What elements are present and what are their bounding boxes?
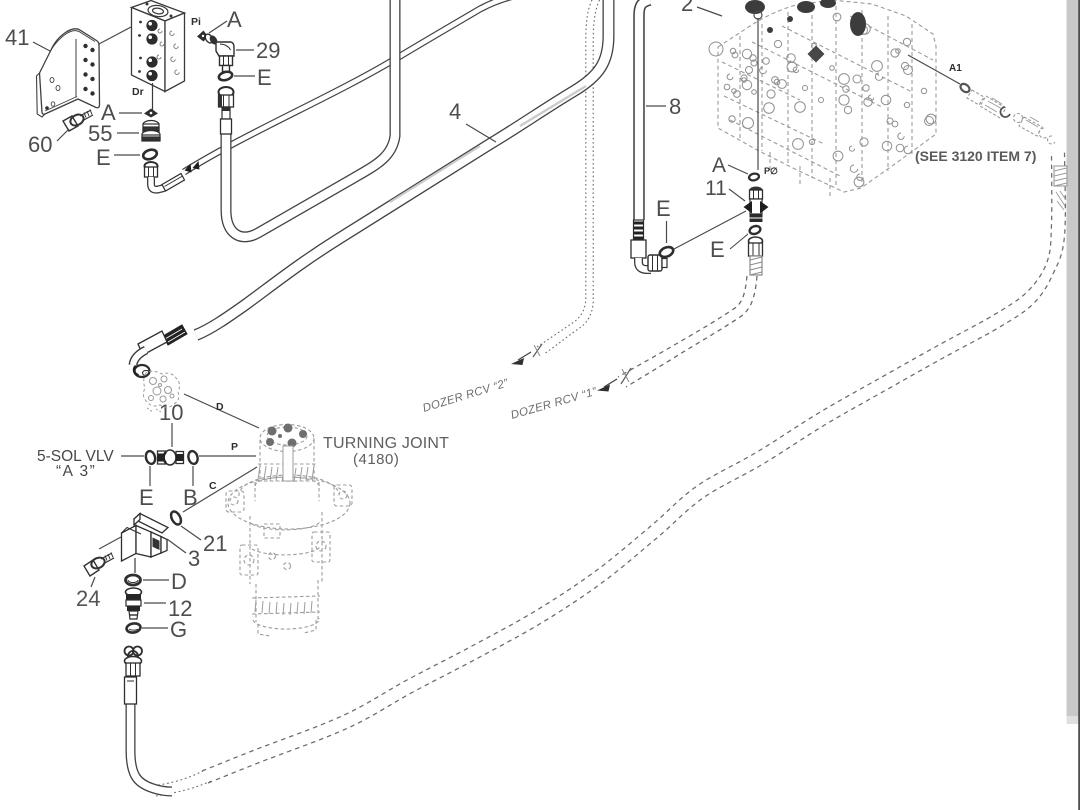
svg-text:A1: A1 xyxy=(949,63,962,74)
svg-text:24: 24 xyxy=(76,586,100,611)
svg-text:(SEE 3120 ITEM 7): (SEE 3120 ITEM 7) xyxy=(915,148,1036,164)
svg-text:60: 60 xyxy=(28,132,52,157)
svg-text:P∅: P∅ xyxy=(764,166,778,176)
svg-text:E: E xyxy=(710,237,725,262)
svg-text:G: G xyxy=(170,617,187,642)
svg-text:E: E xyxy=(257,65,272,90)
svg-text:P: P xyxy=(231,441,238,453)
svg-text:Dr: Dr xyxy=(132,86,144,98)
svg-text:11: 11 xyxy=(705,177,727,200)
svg-text:55: 55 xyxy=(88,121,112,146)
svg-text:8: 8 xyxy=(669,94,681,119)
svg-text:C: C xyxy=(209,480,217,492)
svg-text:10: 10 xyxy=(159,400,183,425)
svg-text:E: E xyxy=(96,145,111,170)
svg-text:(4180): (4180) xyxy=(353,451,399,468)
svg-text:29: 29 xyxy=(256,38,280,63)
svg-text:D: D xyxy=(216,401,224,413)
svg-text:A: A xyxy=(227,7,242,32)
svg-text:E: E xyxy=(656,196,671,221)
svg-text:E: E xyxy=(139,485,154,510)
svg-text:41: 41 xyxy=(5,25,29,50)
svg-text:4: 4 xyxy=(449,99,461,124)
svg-text:Pi: Pi xyxy=(191,16,201,28)
svg-text:D: D xyxy=(171,569,187,594)
svg-text:B: B xyxy=(183,485,198,510)
svg-text:21: 21 xyxy=(203,531,227,556)
svg-text:2: 2 xyxy=(681,0,693,16)
svg-text:A: A xyxy=(712,154,726,177)
svg-text:“A 3”: “A 3” xyxy=(56,463,96,480)
svg-text:3: 3 xyxy=(188,546,200,571)
svg-text:TURNING JOINT: TURNING JOINT xyxy=(323,435,449,452)
